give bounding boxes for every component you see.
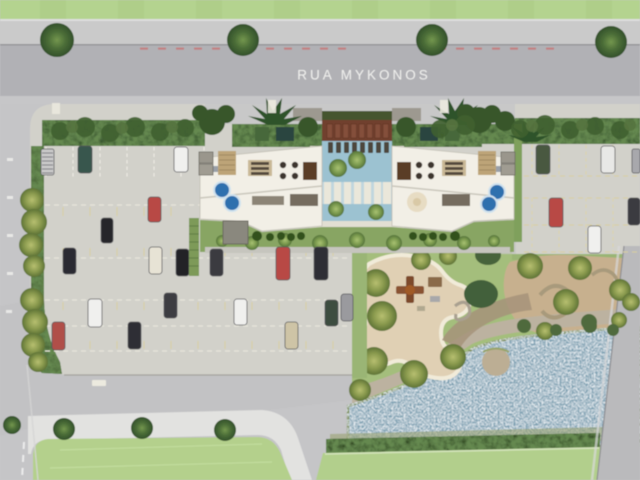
svg-text:RUA MYKONOS: RUA MYKONOS [297, 68, 431, 83]
